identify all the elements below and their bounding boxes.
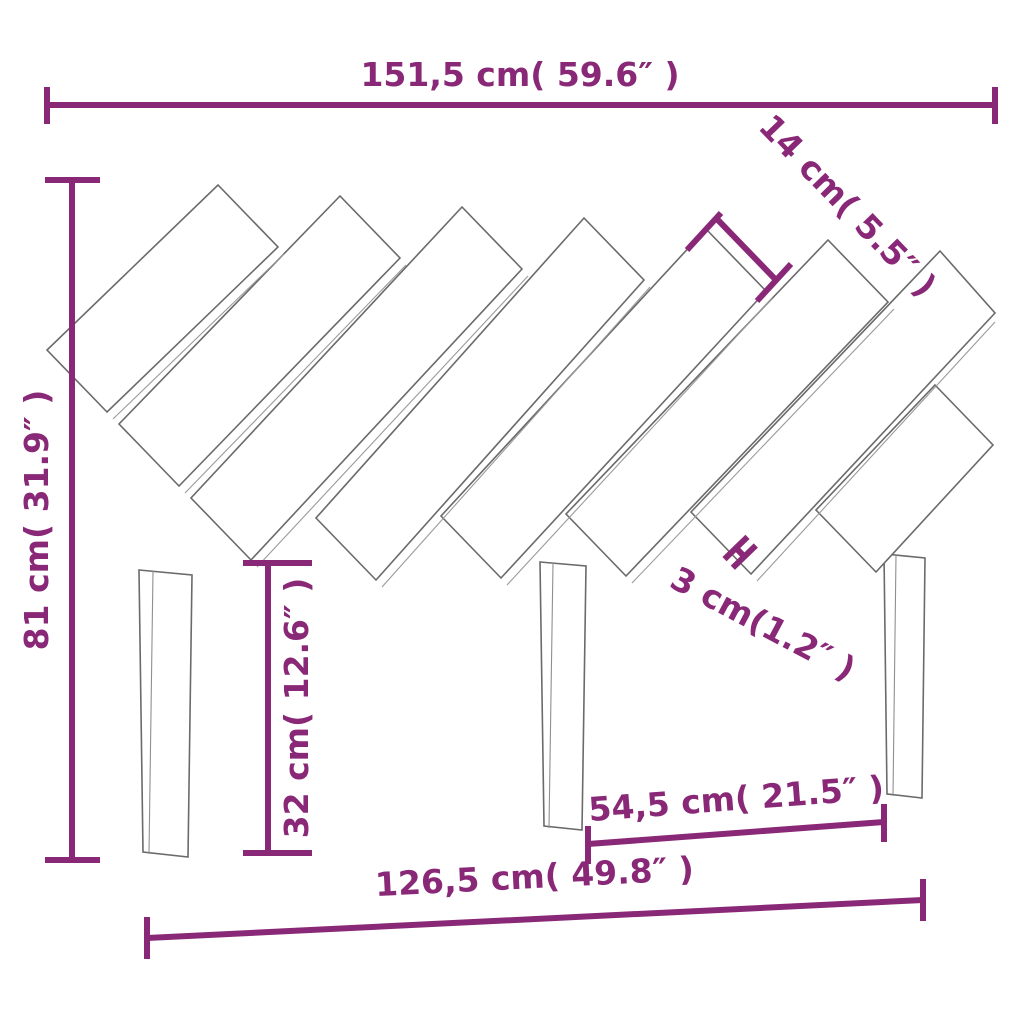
dim-base-width: 126,5 cm( 49.8″ ) (147, 849, 923, 959)
slat-group (47, 185, 995, 587)
dim-leg-height: 32 cm( 12.6″ ) (243, 563, 316, 853)
dim-label-base-width: 126,5 cm( 49.8″ ) (374, 849, 695, 904)
diagram-canvas: 151,5 cm( 59.6″ ) 81 cm( 31.9″ ) 32 cm( … (0, 0, 1024, 1024)
middle-leg (540, 562, 586, 830)
dim-overall-height: 81 cm( 31.9″ ) (17, 180, 100, 860)
dim-overall-width: 151,5 cm( 59.6″ ) (47, 55, 995, 124)
dim-label-overall-width: 151,5 cm( 59.6″ ) (360, 55, 679, 94)
left-leg (139, 570, 192, 857)
dim-leg-span: 54,5 cm( 21.5″ ) (587, 768, 885, 864)
dim-label-leg-height: 32 cm( 12.6″ ) (277, 578, 316, 839)
headboard-dimension-diagram: 151,5 cm( 59.6″ ) 81 cm( 31.9″ ) 32 cm( … (0, 0, 1024, 1024)
dim-label-leg-span: 54,5 cm( 21.5″ ) (587, 768, 885, 829)
dim-line (147, 900, 923, 938)
right-leg (884, 554, 925, 798)
dim-label-slat-gap: 3 cm(1.2″ ) (664, 559, 862, 689)
dim-label-overall-height: 81 cm( 31.9″ ) (17, 390, 56, 651)
